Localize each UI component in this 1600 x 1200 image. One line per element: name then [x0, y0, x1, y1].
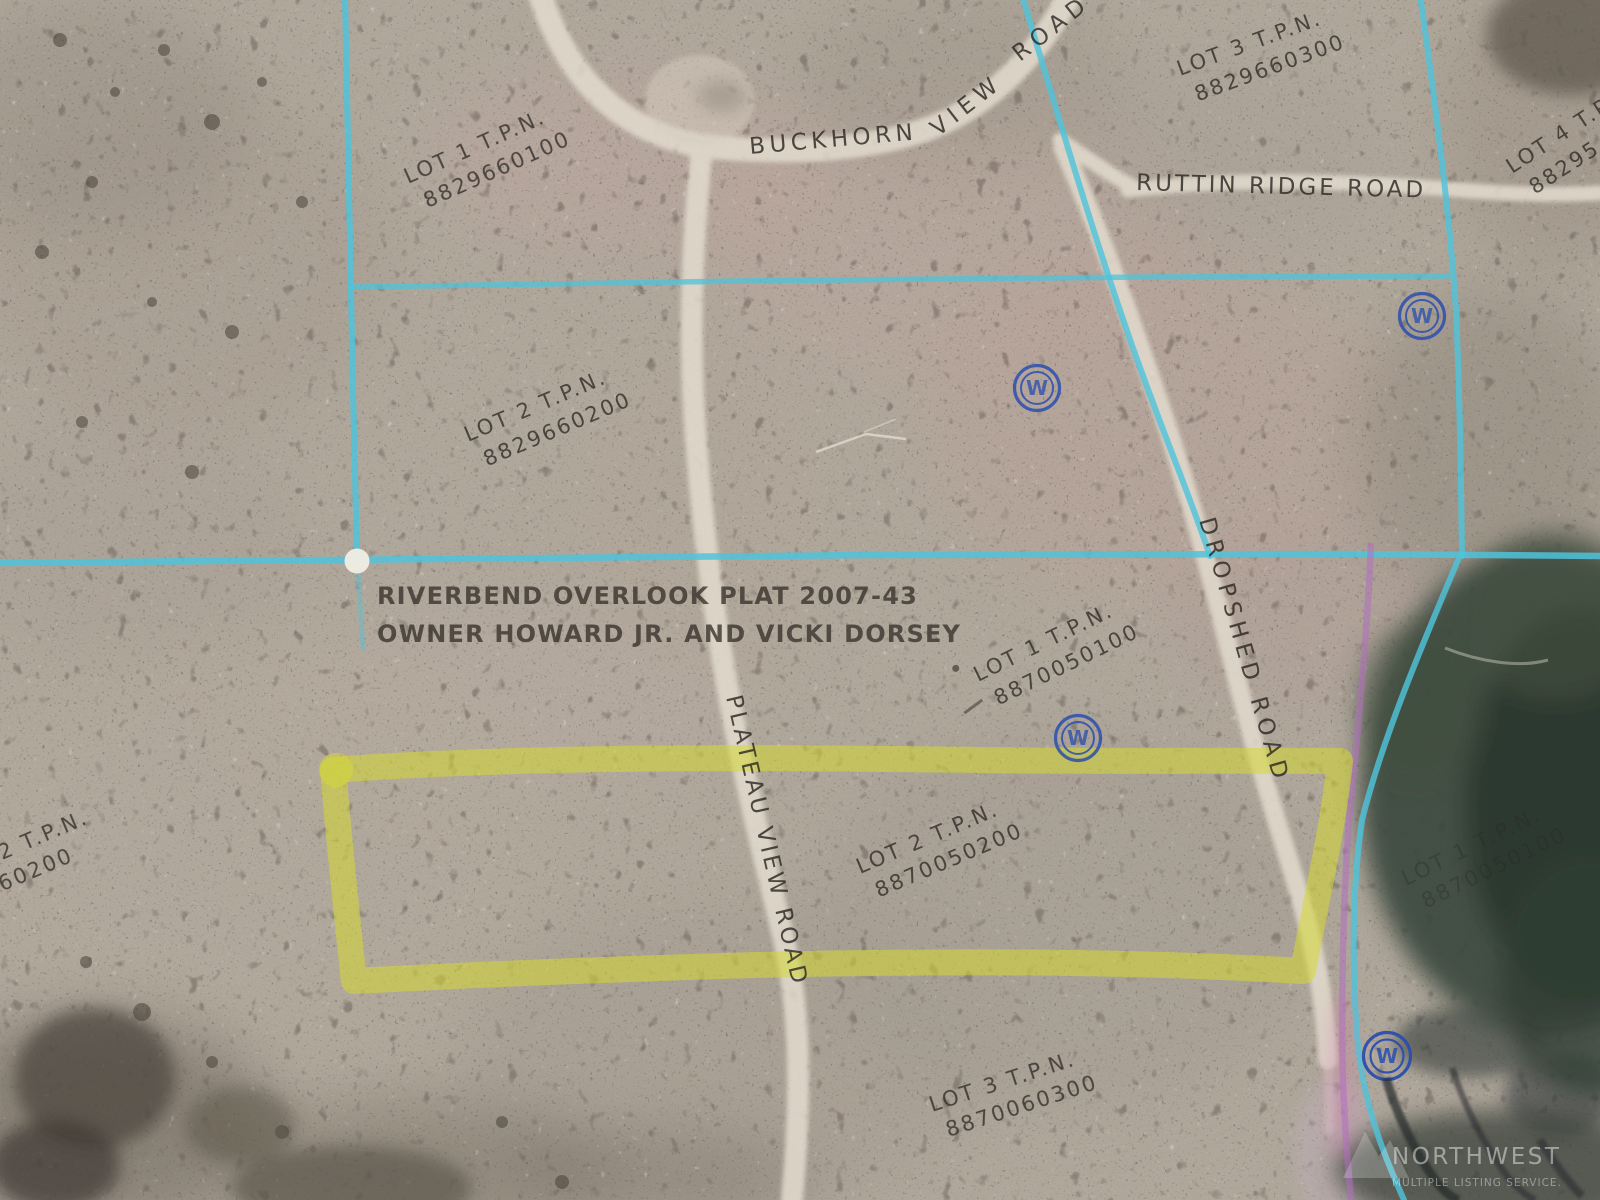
- well-symbol: W: [1015, 366, 1060, 411]
- well-letter: W: [1411, 304, 1433, 328]
- well-letter: W: [1026, 376, 1048, 400]
- plat-map-canvas: RIVERBEND OVERLOOK PLAT 2007-43 OWNER HO…: [0, 0, 1600, 1200]
- well-letter: W: [1067, 726, 1089, 750]
- survey-corner-dot: [345, 549, 370, 574]
- well-symbol: W: [1364, 1033, 1411, 1080]
- well-letter: W: [1376, 1044, 1398, 1068]
- plat-title-line1: RIVERBEND OVERLOOK PLAT 2007-43: [377, 582, 918, 610]
- plat-title-line2: OWNER HOWARD JR. AND VICKI DORSEY: [377, 620, 961, 648]
- watermark-title: NORTHWEST: [1392, 1144, 1561, 1170]
- well-symbol: W: [1400, 294, 1445, 339]
- road-loop-clearing: [645, 55, 755, 145]
- well-symbol: W: [1056, 716, 1101, 761]
- plat-map-photo: RIVERBEND OVERLOOK PLAT 2007-43 OWNER HO…: [0, 0, 1600, 1200]
- watermark-subtitle: MULTIPLE LISTING SERVICE.: [1392, 1177, 1562, 1189]
